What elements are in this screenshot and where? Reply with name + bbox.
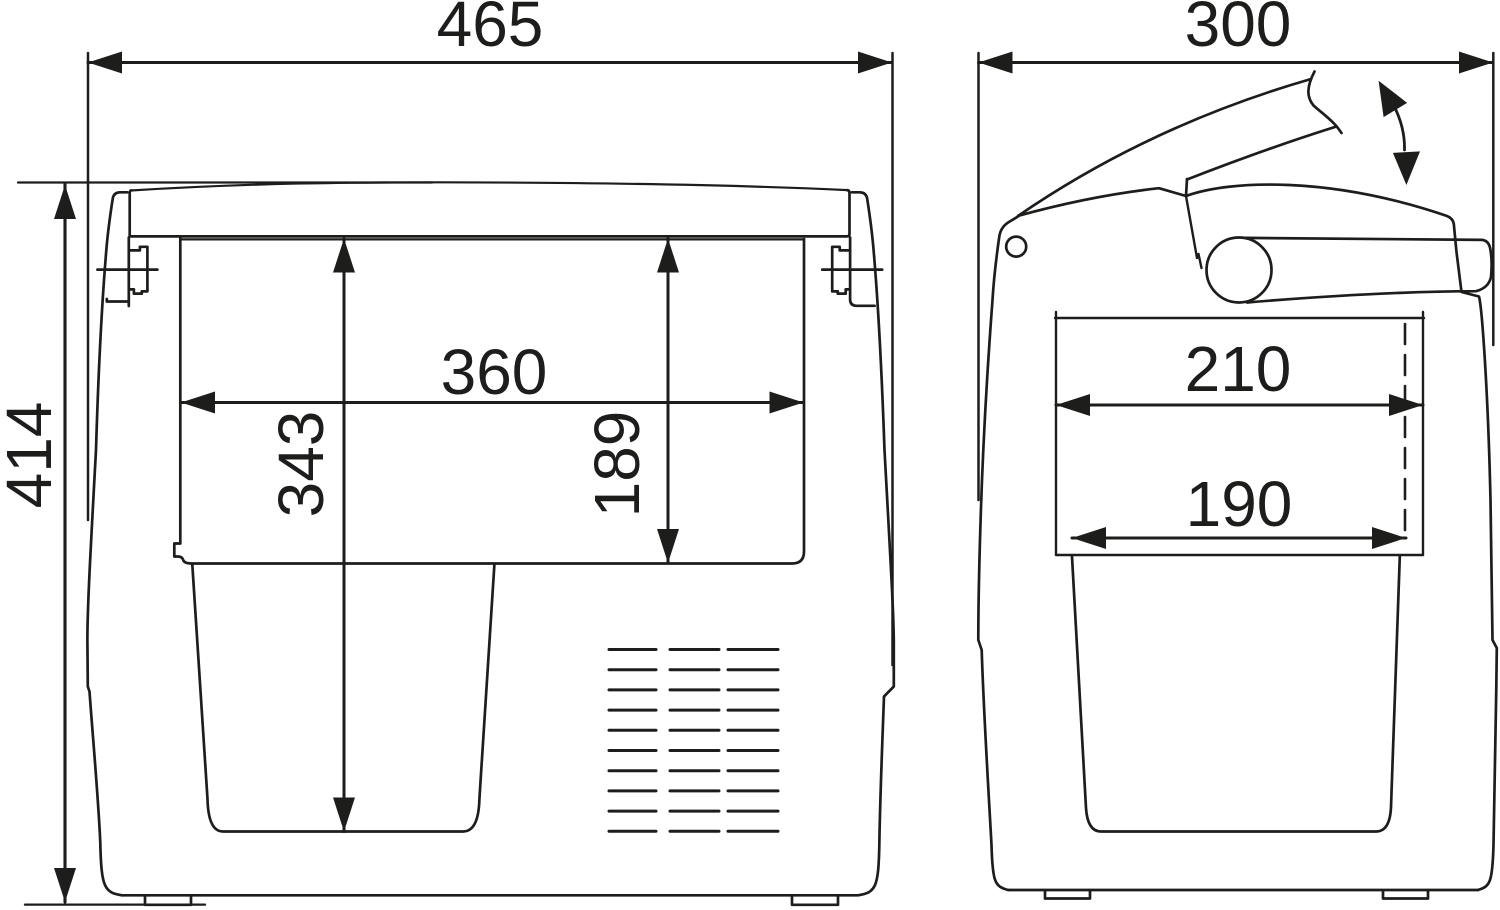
svg-text:360: 360 [441, 336, 548, 408]
svg-text:189: 189 [581, 411, 653, 518]
svg-text:343: 343 [265, 411, 337, 518]
svg-text:210: 210 [1185, 333, 1292, 405]
svg-text:465: 465 [437, 0, 544, 60]
svg-text:190: 190 [1186, 468, 1293, 540]
svg-text:300: 300 [1185, 0, 1292, 60]
svg-text:414: 414 [0, 402, 65, 509]
